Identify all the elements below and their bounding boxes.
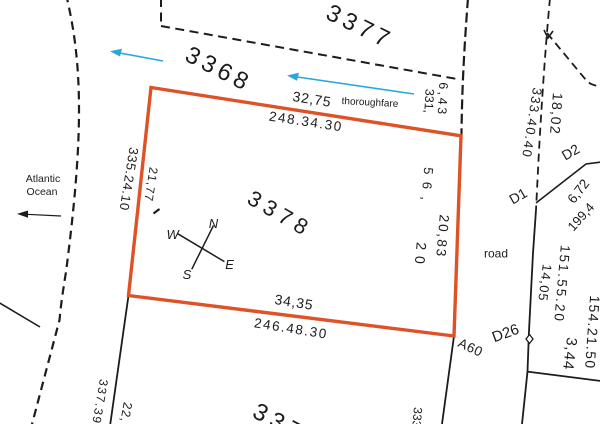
svg-text:Atlantic: Atlantic <box>26 173 60 185</box>
svg-text:331,: 331, <box>421 88 436 113</box>
svg-text:S: S <box>183 267 192 282</box>
svg-text:N: N <box>209 216 219 231</box>
svg-text:333,: 333, <box>409 407 425 424</box>
svg-text:18,02: 18,02 <box>547 92 566 136</box>
svg-text:W: W <box>167 227 181 242</box>
svg-text:Ocean: Ocean <box>27 186 58 198</box>
svg-text:20: 20 <box>411 242 429 271</box>
svg-text:E: E <box>225 257 234 272</box>
svg-text:road: road <box>484 247 508 261</box>
